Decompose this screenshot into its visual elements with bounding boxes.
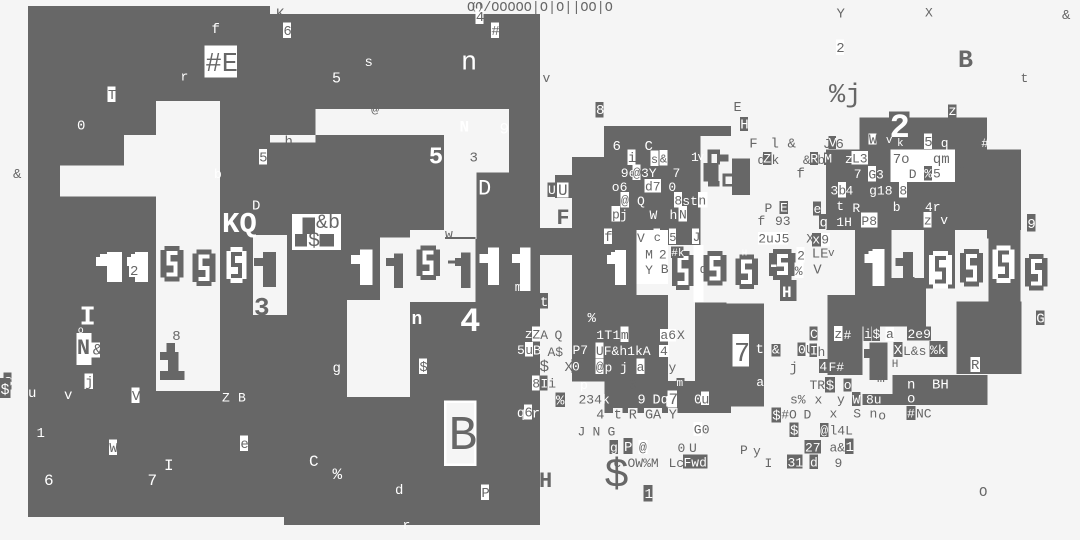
svg-text:0: 0 bbox=[572, 360, 580, 375]
svg-text:p: p bbox=[580, 378, 588, 393]
svg-text:$: $ bbox=[540, 358, 550, 376]
svg-text:3: 3 bbox=[876, 168, 884, 183]
svg-text:7: 7 bbox=[734, 340, 750, 370]
svg-text:Q: Q bbox=[555, 328, 563, 343]
svg-text:27: 27 bbox=[805, 441, 821, 456]
svg-text:#E: #E bbox=[206, 50, 238, 80]
svg-text:X: X bbox=[894, 343, 903, 359]
svg-text:a6: a6 bbox=[660, 328, 676, 343]
svg-text:t: t bbox=[836, 199, 844, 214]
svg-text:l4L: l4L bbox=[830, 424, 853, 439]
svg-text:@: @ bbox=[633, 166, 641, 181]
svg-text:9: 9 bbox=[821, 233, 829, 248]
svg-text:1: 1 bbox=[37, 426, 45, 442]
svg-text:u: u bbox=[28, 386, 36, 402]
svg-text:v: v bbox=[698, 152, 705, 164]
svg-text:7: 7 bbox=[854, 167, 862, 182]
svg-text:1: 1 bbox=[846, 440, 854, 456]
svg-text:JNG: JNG bbox=[578, 425, 616, 440]
svg-text:9: 9 bbox=[1027, 217, 1035, 233]
svg-text:8: 8 bbox=[596, 103, 604, 119]
svg-text:(): () bbox=[471, 2, 483, 14]
svg-text:LE: LE bbox=[812, 247, 829, 263]
svg-text:x: x bbox=[812, 233, 820, 248]
svg-text:0: 0 bbox=[77, 119, 85, 135]
svg-text:5: 5 bbox=[517, 343, 525, 358]
svg-text:5: 5 bbox=[933, 167, 941, 182]
svg-text:k: k bbox=[602, 393, 610, 408]
svg-text:7: 7 bbox=[148, 472, 158, 490]
svg-text:r: r bbox=[403, 518, 411, 533]
svg-text:O: O bbox=[979, 485, 987, 501]
svg-text:o: o bbox=[878, 409, 886, 424]
svg-text:M: M bbox=[824, 152, 832, 167]
svg-text:n: n bbox=[870, 407, 878, 422]
svg-text:%k: %k bbox=[930, 343, 946, 358]
svg-text:y: y bbox=[753, 444, 761, 459]
svg-text:h: h bbox=[818, 345, 826, 360]
svg-text:H: H bbox=[892, 359, 899, 371]
svg-text:R: R bbox=[971, 358, 980, 374]
svg-text:6: 6 bbox=[613, 139, 621, 155]
svg-text:k: k bbox=[897, 138, 904, 150]
svg-text:B: B bbox=[449, 410, 478, 464]
svg-text:7: 7 bbox=[669, 391, 679, 409]
svg-text:4: 4 bbox=[819, 360, 827, 375]
svg-text:P: P bbox=[765, 201, 773, 216]
svg-text:8u: 8u bbox=[866, 393, 882, 408]
svg-text:D: D bbox=[804, 408, 812, 423]
svg-text:v: v bbox=[828, 248, 835, 260]
svg-text:31: 31 bbox=[788, 456, 804, 471]
svg-text:D: D bbox=[909, 167, 917, 182]
svg-text:&: & bbox=[772, 343, 780, 358]
svg-text:0: 0 bbox=[702, 423, 710, 438]
svg-text:TR: TR bbox=[810, 378, 826, 393]
svg-text:4: 4 bbox=[460, 304, 480, 342]
svg-text:a: a bbox=[756, 375, 764, 390]
svg-text:E: E bbox=[734, 101, 742, 116]
svg-text:z: z bbox=[948, 104, 956, 120]
svg-text:n: n bbox=[412, 310, 423, 330]
svg-text:W: W bbox=[650, 208, 658, 223]
svg-text:H: H bbox=[782, 284, 792, 302]
svg-text:2: 2 bbox=[659, 248, 667, 263]
svg-text:5: 5 bbox=[924, 135, 932, 151]
svg-text:5: 5 bbox=[332, 71, 341, 88]
svg-text:@: @ bbox=[639, 441, 647, 456]
svg-text:m: m bbox=[621, 328, 629, 343]
svg-text:N: N bbox=[77, 336, 90, 361]
svg-text:$: $ bbox=[873, 327, 881, 342]
svg-text:3: 3 bbox=[470, 150, 478, 166]
svg-text:93: 93 bbox=[775, 214, 791, 229]
svg-text:%: % bbox=[795, 264, 803, 279]
svg-text:$: $ bbox=[790, 424, 798, 440]
svg-text:J: J bbox=[693, 230, 701, 245]
svg-text:k: k bbox=[772, 153, 780, 168]
svg-text:h: h bbox=[670, 208, 678, 223]
svg-text:2: 2 bbox=[130, 264, 138, 280]
svg-text:#k: #k bbox=[671, 248, 685, 260]
svg-text:g: g bbox=[333, 361, 341, 377]
svg-text:#: # bbox=[907, 407, 915, 422]
svg-text:5: 5 bbox=[669, 231, 676, 245]
svg-text:n: n bbox=[461, 49, 477, 79]
svg-text:234: 234 bbox=[579, 393, 603, 408]
svg-text:f: f bbox=[758, 214, 766, 229]
svg-text:#: # bbox=[844, 328, 852, 343]
svg-text:p: p bbox=[605, 361, 613, 376]
svg-text:Q: Q bbox=[637, 194, 645, 209]
svg-text:m: m bbox=[677, 378, 684, 390]
svg-text:C: C bbox=[309, 453, 319, 471]
svg-text:a: a bbox=[637, 360, 645, 375]
svg-text:5: 5 bbox=[259, 151, 267, 167]
svg-text:S: S bbox=[629, 378, 637, 393]
svg-text:H: H bbox=[742, 249, 747, 259]
svg-text:U: U bbox=[548, 183, 556, 198]
svg-text:a&: a& bbox=[830, 441, 846, 456]
svg-text:X: X bbox=[677, 328, 685, 343]
svg-text:I: I bbox=[164, 457, 174, 475]
svg-text:N: N bbox=[460, 119, 470, 137]
svg-text:g: g bbox=[610, 441, 618, 456]
svg-text:9: 9 bbox=[500, 121, 510, 139]
svg-text:x: x bbox=[815, 393, 823, 408]
svg-text:OW%M: OW%M bbox=[628, 456, 659, 471]
svg-text:C: C bbox=[810, 327, 818, 342]
svg-text:s%: s% bbox=[790, 393, 806, 408]
svg-text:Y: Y bbox=[837, 7, 846, 23]
svg-text:y: y bbox=[669, 361, 677, 376]
svg-text:X: X bbox=[925, 6, 933, 21]
svg-text:Lc: Lc bbox=[669, 456, 685, 471]
svg-text:j: j bbox=[620, 208, 628, 223]
svg-text:&: & bbox=[660, 153, 667, 167]
svg-text:8: 8 bbox=[532, 377, 540, 392]
svg-text:q: q bbox=[941, 136, 949, 151]
svg-text:@: @ bbox=[596, 360, 604, 375]
svg-text:8: 8 bbox=[899, 184, 907, 199]
svg-text:v: v bbox=[543, 71, 551, 86]
svg-text:Y: Y bbox=[645, 263, 653, 278]
svg-text:L&s: L&s bbox=[903, 344, 926, 359]
svg-text:L3: L3 bbox=[852, 152, 868, 167]
svg-text:Z: Z bbox=[763, 152, 771, 167]
svg-text:6: 6 bbox=[836, 137, 844, 153]
svg-text:N: N bbox=[679, 208, 687, 223]
svg-text:z: z bbox=[834, 327, 842, 342]
svg-text:P: P bbox=[740, 443, 748, 458]
svg-text:t: t bbox=[1021, 71, 1029, 86]
svg-text:@: @ bbox=[621, 194, 629, 209]
svg-text:#: # bbox=[981, 136, 989, 151]
svg-text:G: G bbox=[694, 423, 702, 438]
svg-text:4: 4 bbox=[846, 184, 854, 199]
svg-text:W: W bbox=[109, 441, 118, 457]
svg-text:4: 4 bbox=[660, 344, 668, 359]
svg-text:&: & bbox=[13, 167, 22, 183]
svg-text:0: 0 bbox=[798, 343, 806, 358]
svg-text:7: 7 bbox=[673, 166, 681, 181]
svg-text:G: G bbox=[1036, 312, 1044, 328]
svg-text:e: e bbox=[240, 437, 248, 453]
svg-text:B: B bbox=[958, 46, 973, 75]
svg-text:H: H bbox=[740, 118, 748, 134]
svg-text:8: 8 bbox=[172, 329, 180, 345]
svg-text:3: 3 bbox=[830, 184, 838, 199]
svg-text:v: v bbox=[64, 388, 72, 404]
svg-text:f: f bbox=[957, 166, 965, 182]
svg-text:9: 9 bbox=[638, 394, 646, 409]
svg-text:Z: Z bbox=[222, 391, 230, 406]
svg-text:6: 6 bbox=[283, 24, 291, 40]
svg-text:2: 2 bbox=[797, 249, 805, 264]
svg-text:d: d bbox=[395, 483, 403, 499]
svg-text:x: x bbox=[830, 407, 838, 422]
svg-text:KQ: KQ bbox=[222, 208, 257, 241]
svg-text:W: W bbox=[869, 133, 878, 149]
svg-text:H: H bbox=[539, 469, 552, 494]
svg-text:m: m bbox=[877, 371, 885, 386]
svg-text:F l &: F l & bbox=[749, 137, 796, 153]
svg-text:v: v bbox=[940, 213, 948, 228]
svg-text:T: T bbox=[108, 88, 116, 104]
svg-text:P: P bbox=[481, 486, 489, 502]
svg-text:D: D bbox=[478, 177, 491, 202]
svg-text:t: t bbox=[756, 342, 764, 358]
svg-text:Dq: Dq bbox=[653, 394, 669, 409]
svg-text:P7: P7 bbox=[573, 343, 589, 358]
svg-text:K: K bbox=[276, 7, 285, 23]
svg-text:I: I bbox=[765, 456, 773, 471]
svg-text:Z: Z bbox=[532, 328, 540, 343]
svg-text:b: b bbox=[214, 167, 222, 182]
svg-text:%: % bbox=[588, 311, 597, 327]
svg-text:2: 2 bbox=[836, 41, 844, 57]
svg-text:a: a bbox=[886, 327, 894, 342]
svg-text:5: 5 bbox=[429, 145, 443, 172]
svg-text:i: i bbox=[548, 377, 556, 392]
svg-text:2uJ5: 2uJ5 bbox=[758, 232, 789, 247]
svg-text:0: 0 bbox=[678, 441, 686, 456]
svg-text:d7: d7 bbox=[645, 180, 661, 195]
svg-text:Fwd: Fwd bbox=[684, 456, 707, 471]
svg-text:6: 6 bbox=[44, 472, 54, 490]
svg-text:c: c bbox=[614, 456, 622, 471]
svg-text:o: o bbox=[907, 392, 915, 408]
svg-text:m: m bbox=[515, 280, 523, 295]
svg-text:9: 9 bbox=[835, 456, 843, 471]
svg-text:A: A bbox=[540, 328, 548, 343]
svg-text:s: s bbox=[651, 153, 658, 167]
svg-text:P: P bbox=[624, 440, 632, 456]
svg-text:&: & bbox=[1062, 8, 1071, 24]
svg-text:j: j bbox=[620, 361, 628, 376]
svg-text:OO/OOOOO|O|O||OO|O: OO/OOOOO|O|O||OO|O bbox=[467, 1, 613, 16]
svg-text:V: V bbox=[813, 263, 822, 279]
svg-text:%: % bbox=[924, 167, 932, 182]
svg-text:NC: NC bbox=[916, 407, 932, 422]
svg-text:p: p bbox=[612, 208, 620, 223]
svg-text:U: U bbox=[596, 344, 604, 359]
svg-text:B: B bbox=[238, 391, 246, 406]
svg-text:U: U bbox=[689, 441, 697, 456]
svg-text:BH: BH bbox=[932, 378, 949, 394]
svg-text:j: j bbox=[790, 361, 798, 377]
svg-text:A$: A$ bbox=[548, 345, 564, 360]
svg-text:b: b bbox=[893, 200, 901, 215]
svg-text:1H: 1H bbox=[836, 215, 852, 230]
svg-text:d: d bbox=[810, 456, 818, 471]
svg-text:R: R bbox=[852, 201, 860, 216]
svg-text:v: v bbox=[886, 135, 893, 147]
svg-text:F&h1kA: F&h1kA bbox=[604, 344, 651, 359]
svg-text:$: $ bbox=[772, 409, 780, 425]
svg-text:h: h bbox=[285, 135, 293, 151]
svg-text:I: I bbox=[540, 377, 548, 392]
svg-text:$: $ bbox=[1, 382, 10, 399]
svg-text:%: % bbox=[333, 466, 343, 484]
svg-text:#O: #O bbox=[781, 408, 797, 423]
svg-text:$: $ bbox=[419, 360, 427, 376]
svg-text:%j: %j bbox=[829, 81, 861, 111]
svg-text:$: $ bbox=[826, 379, 834, 395]
svg-text:1T1: 1T1 bbox=[596, 328, 620, 343]
svg-text:c: c bbox=[654, 231, 661, 245]
svg-text:3: 3 bbox=[254, 293, 270, 323]
svg-text:@: @ bbox=[371, 102, 380, 118]
svg-text:$: $ bbox=[308, 230, 320, 253]
svg-text:d: d bbox=[700, 262, 708, 277]
svg-text:u: u bbox=[701, 394, 709, 409]
svg-text:g18: g18 bbox=[869, 184, 892, 199]
svg-text:y: y bbox=[837, 393, 845, 408]
svg-text:f: f bbox=[797, 167, 805, 183]
svg-text:%: % bbox=[556, 394, 565, 410]
svg-text:1: 1 bbox=[645, 487, 653, 503]
svg-text:n: n bbox=[698, 194, 706, 209]
svg-text:i: i bbox=[864, 327, 872, 342]
svg-text:F#: F# bbox=[829, 360, 845, 375]
svg-text:B: B bbox=[661, 262, 669, 277]
svg-text:r: r bbox=[181, 70, 189, 85]
svg-text:o: o bbox=[844, 378, 852, 393]
svg-text:P8: P8 bbox=[861, 214, 877, 229]
svg-text:f: f bbox=[604, 230, 612, 246]
svg-text:f: f bbox=[212, 22, 220, 38]
svg-text:t: t bbox=[540, 295, 548, 311]
svg-text:w: w bbox=[445, 227, 453, 242]
svg-text:F: F bbox=[556, 206, 569, 231]
svg-text:V: V bbox=[637, 231, 645, 246]
svg-text:@: @ bbox=[820, 424, 828, 439]
svg-text:&: & bbox=[93, 342, 103, 360]
svg-text:M: M bbox=[645, 248, 653, 263]
svg-text:z: z bbox=[924, 214, 932, 229]
svg-text:U: U bbox=[558, 182, 568, 200]
svg-text:r: r bbox=[532, 408, 540, 423]
svg-text:S: S bbox=[853, 407, 861, 422]
svg-text:W: W bbox=[853, 393, 861, 408]
svg-text:#: # bbox=[491, 24, 499, 40]
svg-text:j: j bbox=[85, 375, 93, 391]
svg-text:s: s bbox=[365, 55, 373, 71]
svg-text:7o: 7o bbox=[893, 152, 910, 168]
svg-text:V: V bbox=[132, 389, 141, 405]
svg-text:i: i bbox=[628, 151, 636, 167]
svg-text:q: q bbox=[820, 216, 828, 232]
svg-text:2e9: 2e9 bbox=[908, 327, 931, 342]
